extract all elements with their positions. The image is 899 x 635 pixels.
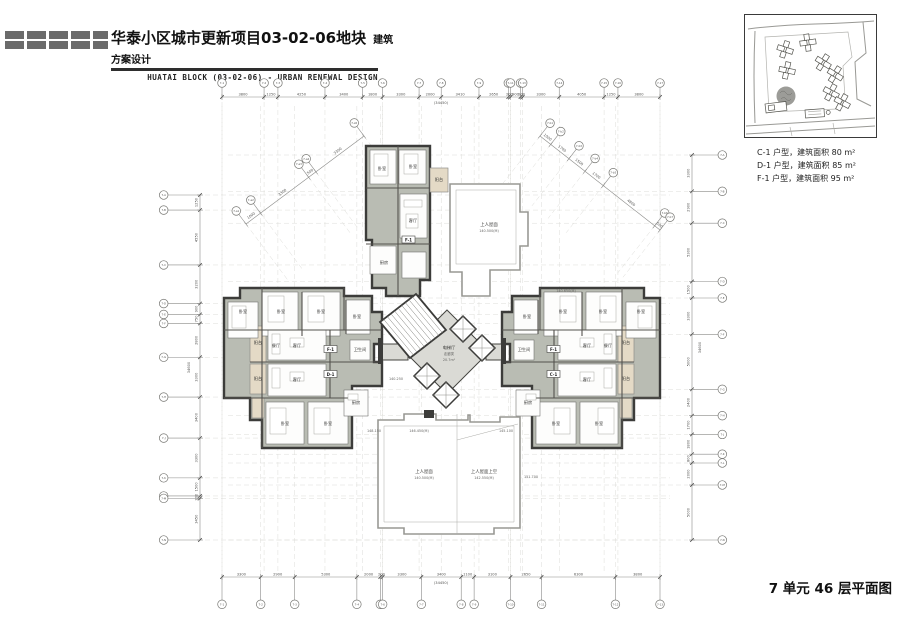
svg-text:7-2: 7-2 xyxy=(259,602,264,606)
svg-text:4800: 4800 xyxy=(626,199,636,208)
svg-text:2650: 2650 xyxy=(489,93,499,97)
svg-text:7-b5: 7-b5 xyxy=(610,171,616,175)
svg-text:F-1: F-1 xyxy=(327,347,334,352)
svg-text:1100: 1100 xyxy=(463,573,473,577)
svg-text:7-D: 7-D xyxy=(720,280,725,284)
svg-text:148.150: 148.150 xyxy=(367,429,381,433)
svg-text:7-a5: 7-a5 xyxy=(351,121,357,125)
svg-text:电梯厅: 电梯厅 xyxy=(443,344,456,351)
svg-text:客厅: 客厅 xyxy=(293,376,301,383)
svg-text:(34450): (34450) xyxy=(434,581,449,585)
svg-text:7-b1: 7-b1 xyxy=(547,121,553,125)
svg-text:餐厅: 餐厅 xyxy=(604,342,612,349)
svg-text:F-1: F-1 xyxy=(405,237,412,242)
svg-text:卧室: 卧室 xyxy=(239,308,247,315)
svg-text:5300: 5300 xyxy=(687,247,691,257)
svg-text:F-1: F-1 xyxy=(550,347,557,352)
svg-text:20.7m²: 20.7m² xyxy=(443,358,456,362)
page: { "header": { "title_cn": "华泰小区城市更新项目03-… xyxy=(0,0,899,635)
svg-text:3300: 3300 xyxy=(278,188,288,197)
svg-text:7-H: 7-H xyxy=(161,395,166,399)
svg-text:7-K: 7-K xyxy=(720,452,725,456)
svg-text:140.500(M): 140.500(M) xyxy=(414,476,434,480)
svg-text:厨房: 厨房 xyxy=(352,399,360,406)
svg-text:卧室: 卧室 xyxy=(409,163,417,170)
core xyxy=(378,294,506,408)
svg-text:3300: 3300 xyxy=(333,146,343,155)
svg-text:2000: 2000 xyxy=(426,93,436,97)
svg-text:7-1: 7-1 xyxy=(220,602,225,606)
svg-text:7-b2: 7-b2 xyxy=(558,130,564,134)
svg-text:阳台: 阳台 xyxy=(435,176,443,183)
svg-text:7-J: 7-J xyxy=(162,436,166,440)
svg-text:7-9: 7-9 xyxy=(472,602,477,606)
svg-text:卧室: 卧室 xyxy=(637,308,645,315)
svg-text:7-b3: 7-b3 xyxy=(576,144,582,148)
svg-text:7-9: 7-9 xyxy=(477,81,482,85)
svg-text:6300: 6300 xyxy=(574,573,584,577)
svg-text:3300: 3300 xyxy=(237,573,247,577)
svg-text:2900: 2900 xyxy=(687,202,691,212)
svg-text:卧室: 卧室 xyxy=(595,420,603,427)
svg-text:7-F: 7-F xyxy=(162,321,167,325)
svg-text:1800: 1800 xyxy=(368,93,378,97)
svg-text:7-C: 7-C xyxy=(720,221,725,225)
svg-text:7-G: 7-G xyxy=(161,355,166,359)
svg-text:3410: 3410 xyxy=(456,93,466,97)
svg-text:7-16: 7-16 xyxy=(615,81,621,85)
svg-text:7-5: 7-5 xyxy=(360,81,365,85)
svg-text:1000: 1000 xyxy=(543,133,553,142)
svg-text:145.100: 145.100 xyxy=(499,429,513,433)
svg-text:7-15: 7-15 xyxy=(601,81,607,85)
svg-text:2000: 2000 xyxy=(364,573,374,577)
svg-text:3800: 3800 xyxy=(633,573,643,577)
svg-text:5000: 5000 xyxy=(687,357,691,367)
svg-text:151.700: 151.700 xyxy=(524,475,538,479)
svg-text:阳台: 阳台 xyxy=(622,375,630,382)
svg-text:上人屋面: 上人屋面 xyxy=(480,221,498,228)
svg-text:7-6: 7-6 xyxy=(380,81,385,85)
svg-text:1500: 1500 xyxy=(687,284,691,294)
svg-text:5000: 5000 xyxy=(687,507,691,517)
svg-text:1500: 1500 xyxy=(574,158,584,167)
svg-text:上人屋面: 上人屋面 xyxy=(415,468,433,475)
svg-text:(34450): (34450) xyxy=(434,101,449,105)
svg-text:200: 200 xyxy=(378,573,386,577)
svg-text:C-1: C-1 xyxy=(550,372,558,377)
svg-text:2900: 2900 xyxy=(273,573,283,577)
svg-text:客厅: 客厅 xyxy=(583,376,591,383)
svg-text:7-7: 7-7 xyxy=(417,81,422,85)
svg-text:卫生间: 卫生间 xyxy=(518,346,531,353)
svg-text:7-12: 7-12 xyxy=(612,602,618,606)
svg-text:3300: 3300 xyxy=(396,93,406,97)
svg-text:7-a2: 7-a2 xyxy=(248,198,254,202)
svg-text:200: 200 xyxy=(518,93,526,97)
svg-text:7-6: 7-6 xyxy=(380,602,385,606)
svg-text:7-3: 7-3 xyxy=(276,81,281,85)
svg-text:卧室: 卧室 xyxy=(599,308,607,315)
svg-text:7-B: 7-B xyxy=(720,189,725,193)
svg-text:7-13: 7-13 xyxy=(520,81,526,85)
svg-text:7-N: 7-N xyxy=(161,538,166,542)
svg-text:卧室: 卧室 xyxy=(523,313,531,320)
svg-text:卧室: 卧室 xyxy=(317,308,325,315)
svg-text:客厅: 客厅 xyxy=(293,342,301,349)
svg-text:1250: 1250 xyxy=(606,93,616,97)
svg-text:厨房: 厨房 xyxy=(524,399,532,406)
svg-text:1250: 1250 xyxy=(195,197,199,207)
svg-text:7-H: 7-H xyxy=(720,414,725,418)
svg-text:34600: 34600 xyxy=(698,341,702,353)
svg-text:140.650(M): 140.650(M) xyxy=(556,289,576,293)
svg-text:7-17: 7-17 xyxy=(657,81,663,85)
svg-text:7-L: 7-L xyxy=(720,461,725,465)
svg-text:2400: 2400 xyxy=(687,397,691,407)
svg-text:7-E: 7-E xyxy=(720,296,725,300)
svg-text:客厅: 客厅 xyxy=(583,342,591,349)
svg-text:7-1: 7-1 xyxy=(220,81,225,85)
svg-text:140.500(M): 140.500(M) xyxy=(479,229,499,233)
svg-text:900: 900 xyxy=(195,305,199,313)
svg-text:餐厅: 餐厅 xyxy=(272,342,280,349)
svg-text:7-C: 7-C xyxy=(161,263,166,267)
svg-text:4550: 4550 xyxy=(195,232,199,242)
svg-text:7-4: 7-4 xyxy=(355,602,360,606)
svg-text:7-A: 7-A xyxy=(720,153,725,157)
svg-text:7-b7: 7-b7 xyxy=(667,215,673,219)
svg-text:7-a1: 7-a1 xyxy=(233,209,239,213)
svg-text:800: 800 xyxy=(687,454,691,462)
svg-text:1000: 1000 xyxy=(246,211,256,220)
svg-text:7-7: 7-7 xyxy=(419,602,424,606)
svg-text:7-B: 7-B xyxy=(161,208,166,212)
svg-text:3200: 3200 xyxy=(195,279,199,289)
svg-text:2000: 2000 xyxy=(687,469,691,479)
svg-text:3300: 3300 xyxy=(195,372,199,382)
svg-text:3300: 3300 xyxy=(536,93,546,97)
svg-text:200: 200 xyxy=(195,493,199,501)
svg-text:7-M: 7-M xyxy=(720,483,726,487)
svg-text:7-a4: 7-a4 xyxy=(303,157,309,161)
svg-text:3300: 3300 xyxy=(687,168,691,178)
svg-text:3800: 3800 xyxy=(634,93,644,97)
svg-text:7-F: 7-F xyxy=(720,332,725,336)
svg-text:2800: 2800 xyxy=(195,335,199,345)
svg-text:3400: 3400 xyxy=(195,412,199,422)
floor-plan-drawing: 7-17-27-37-47-57-67-77-87-97-107-117-127… xyxy=(0,0,899,635)
svg-text:7-b4: 7-b4 xyxy=(592,156,598,160)
svg-text:卧室: 卧室 xyxy=(353,313,361,320)
svg-text:卧室: 卧室 xyxy=(378,165,386,172)
svg-text:走廊类: 走廊类 xyxy=(444,351,455,356)
svg-text:4050: 4050 xyxy=(577,93,587,97)
svg-text:厨房: 厨房 xyxy=(380,259,388,266)
svg-text:卧室: 卧室 xyxy=(552,420,560,427)
svg-text:3800: 3800 xyxy=(238,93,248,97)
svg-text:3100: 3100 xyxy=(488,573,498,577)
svg-text:卧室: 卧室 xyxy=(559,308,567,315)
svg-text:7-a3: 7-a3 xyxy=(296,162,302,166)
svg-text:D-1: D-1 xyxy=(327,372,335,377)
svg-text:4250: 4250 xyxy=(297,93,307,97)
svg-text:3400: 3400 xyxy=(437,573,447,577)
roof-top-right xyxy=(450,184,528,296)
svg-text:7-J: 7-J xyxy=(720,432,724,436)
svg-text:上人屋面上空: 上人屋面上空 xyxy=(471,468,498,475)
svg-text:7-K: 7-K xyxy=(161,476,166,480)
svg-text:7-14: 7-14 xyxy=(556,81,562,85)
svg-text:1500: 1500 xyxy=(195,482,199,492)
left-wing xyxy=(224,288,382,448)
svg-text:146.450(M): 146.450(M) xyxy=(409,429,429,433)
svg-text:7-E: 7-E xyxy=(162,312,167,316)
svg-text:750: 750 xyxy=(195,315,199,323)
svg-text:7-3: 7-3 xyxy=(293,602,298,606)
svg-text:卧室: 卧室 xyxy=(277,308,285,315)
svg-text:7-G: 7-G xyxy=(720,387,725,391)
svg-text:1700: 1700 xyxy=(687,420,691,430)
svg-text:3400: 3400 xyxy=(339,93,349,97)
svg-text:140.250: 140.250 xyxy=(389,377,403,381)
svg-text:7-8: 7-8 xyxy=(439,81,444,85)
svg-text:阳台: 阳台 xyxy=(254,375,262,382)
svg-text:1250: 1250 xyxy=(266,93,276,97)
svg-text:卧室: 卧室 xyxy=(324,420,332,427)
svg-text:7-10: 7-10 xyxy=(507,602,513,606)
svg-text:2650: 2650 xyxy=(521,573,531,577)
svg-text:7-N: 7-N xyxy=(720,538,725,542)
svg-text:7-13: 7-13 xyxy=(657,602,663,606)
svg-text:7-2: 7-2 xyxy=(262,81,267,85)
svg-text:阳台: 阳台 xyxy=(622,339,630,346)
svg-text:客厅: 客厅 xyxy=(409,217,417,224)
svg-text:7-11: 7-11 xyxy=(507,81,513,85)
svg-text:7-8: 7-8 xyxy=(459,602,464,606)
svg-text:7-D: 7-D xyxy=(161,302,166,306)
svg-text:1700: 1700 xyxy=(557,144,567,153)
svg-text:5300: 5300 xyxy=(321,573,331,577)
svg-text:1700: 1700 xyxy=(591,171,601,180)
svg-text:7-A: 7-A xyxy=(161,193,166,197)
svg-text:34600: 34600 xyxy=(187,361,191,373)
svg-text:阳台: 阳台 xyxy=(254,339,262,346)
svg-text:3300: 3300 xyxy=(397,573,407,577)
svg-text:3300: 3300 xyxy=(195,453,199,463)
svg-text:3300: 3300 xyxy=(687,311,691,321)
svg-text:1800: 1800 xyxy=(687,439,691,449)
svg-text:142.550(M): 142.550(M) xyxy=(474,476,494,480)
svg-text:7-11: 7-11 xyxy=(539,602,545,606)
svg-text:卫生间: 卫生间 xyxy=(354,346,367,353)
svg-text:3450: 3450 xyxy=(195,514,199,524)
svg-text:卧室: 卧室 xyxy=(281,420,289,427)
svg-text:7-4: 7-4 xyxy=(323,81,328,85)
svg-text:7-M: 7-M xyxy=(161,496,167,500)
